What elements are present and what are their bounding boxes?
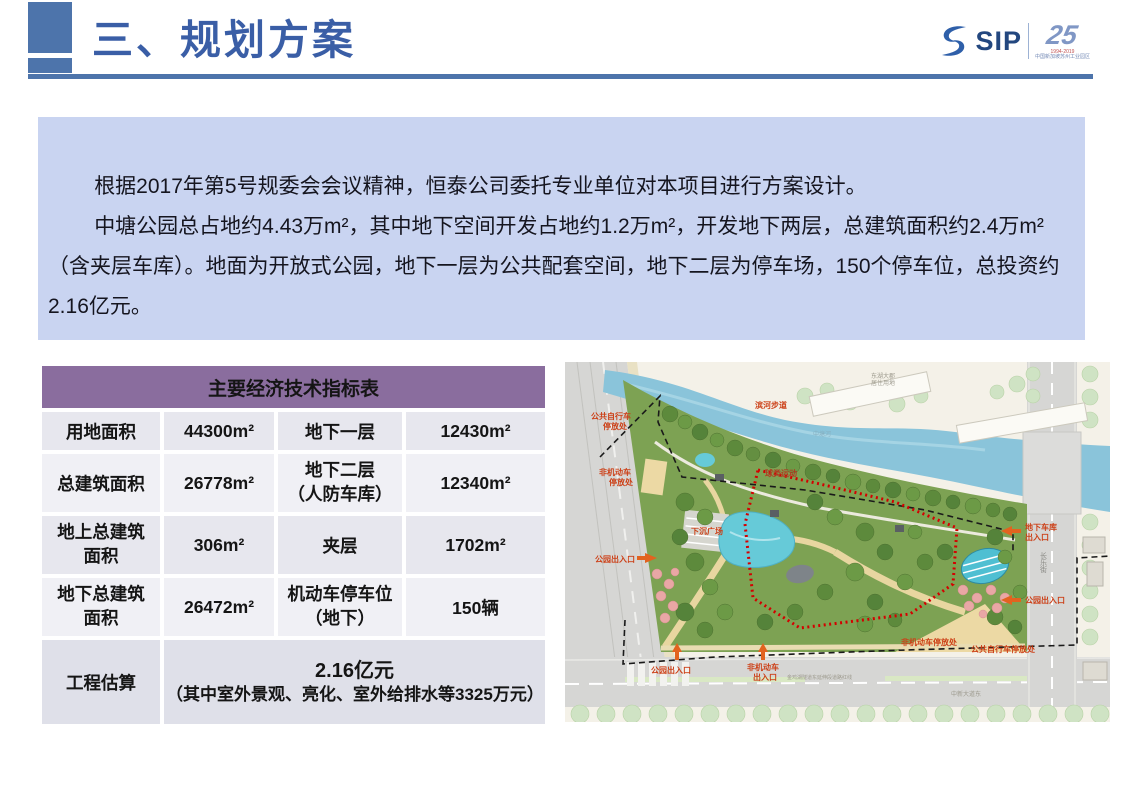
label-park-entry-bottom: 公园出入口 — [651, 665, 691, 675]
label-ball-sports: 球类运动 — [765, 468, 797, 478]
row-value: 306m² — [164, 516, 274, 574]
label-nonmotor-entry: 非机动车 — [747, 662, 779, 672]
anniversary-mark: 25 1994-2019 中国新加坡苏州工业园区 — [1035, 22, 1090, 60]
svg-text:停放处: 停放处 — [609, 477, 634, 487]
label-zhongxin-avenue: 中新大道东 — [951, 690, 981, 698]
label-tunnel-redline: 金鸡湖隧道东延伸段道路红线 — [787, 674, 852, 681]
row-value: 150辆 — [406, 578, 545, 636]
table-row: 总建筑面积 26778m² 地下二层 （人防车库） 12340m² — [42, 454, 545, 512]
svg-text:出入口: 出入口 — [753, 672, 777, 682]
table-header-row: 主要经济技术指标表 — [42, 366, 545, 408]
estimate-cell: 2.16亿元 （其中室外景观、亮化、室外给排水等3325万元） — [164, 640, 545, 724]
site-plan-image: 公共自行车 停放处 非机动车 停放处 滨河步道 中塘河 东湖大郡 居住用地 球类… — [565, 362, 1110, 722]
intro-paragraph-2: 中塘公园总占地约4.43万m²，其中地下空间开发占地约1.2万m²，开发地下两层… — [48, 207, 1075, 327]
row-label: 地下一层 — [278, 412, 402, 450]
page-title: 三、规划方案 — [92, 6, 356, 66]
svg-text:出入口: 出入口 — [1025, 532, 1049, 542]
row-label: 地下总建筑 面积 — [42, 578, 160, 636]
title-decoration-square-large — [28, 2, 72, 53]
row-value: 26778m² — [164, 454, 274, 512]
table-row: 地上总建筑 面积 306m² 夹层 1702m² — [42, 516, 545, 574]
row-value: 1702m² — [406, 516, 545, 574]
row-value: 12340m² — [406, 454, 545, 512]
label-nonmotor-parking-left: 非机动车 — [599, 467, 631, 477]
row-label: 机动车停车位 （地下） — [278, 578, 402, 636]
label-donghu: 东湖大郡 — [871, 372, 895, 380]
label-nonmotor-parking-br: 非机动车停放处 — [901, 637, 958, 647]
anniversary-number: 25 — [1045, 22, 1080, 49]
label-bike-parking-br: 公共自行车停放处 — [971, 644, 1036, 654]
table-estimate-row: 工程估算 2.16亿元 （其中室外景观、亮化、室外给排水等3325万元） — [42, 640, 545, 724]
sip-wordmark: SIP — [975, 26, 1022, 57]
indicator-table: 主要经济技术指标表 用地面积 44300m² 地下一层 12430m² 总建筑面… — [38, 362, 549, 728]
svg-text:居住用地: 居住用地 — [871, 379, 895, 387]
label-riverside-walk: 滨河步道 — [755, 400, 787, 410]
bridge — [1023, 432, 1081, 514]
anniversary-org: 中国新加坡苏州工业园区 — [1035, 55, 1090, 60]
table-row: 用地面积 44300m² 地下一层 12430m² — [42, 412, 545, 450]
table-row: 地下总建筑 面积 26472m² 机动车停车位 （地下） 150辆 — [42, 578, 545, 636]
logo-divider — [1028, 23, 1029, 59]
estimate-note: （其中室外景观、亮化、室外给排水等3325万元） — [166, 684, 543, 706]
label-changle-street: 长乐街 — [1040, 551, 1048, 574]
estimate-value: 2.16亿元 — [166, 658, 543, 684]
row-value: 44300m² — [164, 412, 274, 450]
row-value: 12430m² — [406, 412, 545, 450]
estimate-label: 工程估算 — [42, 640, 160, 724]
intro-text-box: 根据2017年第5号规委会会议精神，恒泰公司委托专业单位对本项目进行方案设计。 … — [38, 117, 1085, 340]
row-label: 夹层 — [278, 516, 402, 574]
slide: 三、规划方案 SIP 25 1994-2019 中国新加坡苏州工业园区 根据20… — [0, 0, 1123, 794]
title-decoration-square-small — [28, 58, 72, 73]
row-label: 用地面积 — [42, 412, 160, 450]
row-label: 地上总建筑 面积 — [42, 516, 160, 574]
sip-logo: SIP 25 1994-2019 中国新加坡苏州工业园区 — [939, 22, 1090, 60]
label-garage-entry: 地下车库 — [1025, 522, 1057, 532]
title-underline — [28, 74, 1093, 79]
label-park-entry-left: 公园出入口 — [595, 554, 635, 564]
label-river-name: 中塘河 — [813, 430, 831, 438]
table-title: 主要经济技术指标表 — [42, 366, 545, 408]
svg-text:停放处: 停放处 — [603, 421, 628, 431]
small-pond — [695, 453, 715, 467]
row-label: 地下二层 （人防车库） — [278, 454, 402, 512]
intro-paragraph-1: 根据2017年第5号规委会会议精神，恒泰公司委托专业单位对本项目进行方案设计。 — [48, 167, 1075, 207]
label-park-entry-right: 公园出入口 — [1025, 595, 1065, 605]
sip-s-icon — [939, 24, 969, 58]
label-bike-parking-topleft: 公共自行车 — [591, 411, 631, 421]
label-sunken-plaza: 下沉广场 — [691, 526, 723, 536]
row-value: 26472m² — [164, 578, 274, 636]
row-label: 总建筑面积 — [42, 454, 160, 512]
